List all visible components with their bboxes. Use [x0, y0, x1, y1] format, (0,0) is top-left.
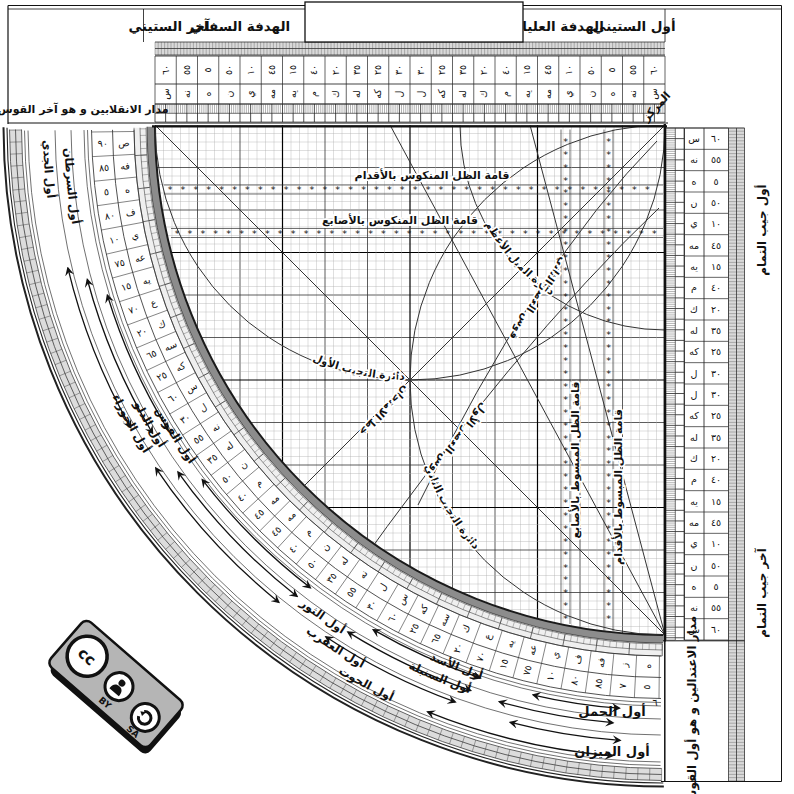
svg-text:ي: ي: [130, 229, 140, 241]
zodiac-arrow: [511, 722, 620, 740]
svg-text:*: *: [563, 291, 568, 302]
svg-text:ك: ك: [156, 318, 167, 331]
svg-text:*: *: [613, 228, 618, 239]
svg-text:ي: ي: [690, 218, 697, 229]
ruler-cell: ٤٠م: [500, 65, 511, 97]
ruler-cell: ٢٥كه: [689, 346, 721, 357]
svg-text:*: *: [606, 613, 611, 624]
ruler-cell: ٣٠ل: [691, 368, 722, 379]
ruler-cell: ٢٠ك: [690, 453, 721, 464]
svg-text:*: *: [413, 184, 418, 195]
svg-text:يه: يه: [503, 638, 516, 649]
svg-text:كه: كه: [436, 89, 447, 99]
svg-text:*: *: [258, 184, 263, 195]
cc-by-sa-badge: cc BY SA: [43, 618, 188, 756]
svg-text:كه: كه: [174, 359, 188, 373]
svg-text:نه: نه: [356, 568, 369, 581]
ruler-cell: ٥٥نه: [690, 154, 721, 165]
svg-text:٢٠: ٢٠: [478, 65, 489, 75]
svg-text:مه: مه: [542, 89, 553, 99]
svg-text:٦٠: ٦٠: [166, 390, 180, 405]
svg-text:*: *: [606, 484, 611, 495]
svg-text:*: *: [342, 228, 347, 239]
svg-text:*: *: [563, 445, 568, 456]
ruler-cell: ٥٥نه: [690, 602, 721, 613]
svg-text:ي: ي: [549, 650, 561, 660]
svg-text:*: *: [563, 226, 568, 237]
zodiac-label: أول السرطان: [61, 147, 84, 225]
svg-text:*: *: [322, 184, 327, 195]
ruler-cell: ٥٥نه: [627, 65, 638, 98]
svg-text:ن: ن: [237, 458, 249, 471]
svg-text:*: *: [355, 228, 360, 239]
svg-text:*: *: [361, 184, 366, 195]
svg-text:*: *: [523, 228, 528, 239]
ruler-cell: ٢٥كه: [372, 65, 383, 99]
svg-text:١٠: ١٠: [711, 218, 721, 229]
svg-text:*: *: [168, 184, 173, 195]
svg-text:٧٠: ٧٠: [474, 650, 488, 663]
svg-text:*: *: [563, 536, 568, 547]
svg-text:*: *: [477, 184, 482, 195]
svg-text:ز: ز: [618, 662, 629, 669]
svg-text:*: *: [563, 407, 568, 418]
svg-text:م: م: [500, 91, 511, 97]
ruler-cell: ٣٠ل: [415, 65, 426, 98]
svg-text:*: *: [563, 613, 568, 624]
svg-text:م: م: [691, 474, 697, 485]
svg-text:مه: مه: [266, 89, 277, 99]
svg-text:*: *: [600, 228, 605, 239]
svg-text:*: *: [632, 184, 637, 195]
degree-ring-cell: ٤٠م: [235, 476, 264, 504]
svg-text:*: *: [563, 355, 568, 366]
svg-text:*: *: [381, 228, 386, 239]
svg-text:نه: نه: [690, 602, 698, 613]
svg-text:*: *: [458, 228, 463, 239]
feet-row-label: قامة الظل المنكوس بالأقدام: [355, 168, 510, 182]
svg-text:١٥: ١٥: [521, 65, 532, 75]
svg-text:*: *: [368, 228, 373, 239]
svg-text:٣٠: ٣٠: [178, 411, 192, 426]
svg-text:*: *: [348, 184, 353, 195]
svg-text:*: *: [549, 228, 554, 239]
svg-text:*: *: [606, 200, 611, 211]
svg-text:*: *: [606, 368, 611, 379]
svg-text:٤٠: ٤٠: [235, 489, 250, 504]
svg-text:١٥: ١٥: [287, 65, 298, 75]
svg-text:٥٥: ٥٥: [627, 65, 638, 75]
svg-text:*: *: [606, 355, 611, 366]
svg-text:*: *: [563, 304, 568, 315]
svg-text:*: *: [542, 184, 547, 195]
ruler-cell: ٥ه: [692, 581, 719, 592]
svg-text:*: *: [490, 184, 495, 195]
svg-text:يه: يه: [521, 90, 532, 98]
sine-circle-first-label: دائرة التجيب الأول: [311, 351, 405, 382]
svg-text:*: *: [563, 420, 568, 431]
svg-text:٤٠: ٤٠: [286, 540, 301, 555]
svg-text:*: *: [575, 228, 580, 239]
svg-text:*: *: [310, 184, 315, 195]
svg-text:٨٠: ٨٠: [568, 674, 580, 686]
feet-col-label: قامة الظل المبسوط بالأقدام: [611, 409, 625, 565]
svg-text:ه: ه: [124, 183, 130, 195]
svg-text:٣٠: ٣٠: [393, 65, 404, 75]
svg-text:*: *: [426, 184, 431, 195]
svg-text:*: *: [563, 200, 568, 211]
degree-ring-cell: ٩٠ص: [98, 137, 130, 149]
first-sixty-label: أول الستيني: [592, 18, 675, 34]
sine-circle-first-text: دائرة التجيب الأول: [311, 351, 405, 382]
svg-text:كه: كه: [416, 602, 430, 616]
svg-text:٥٠: ٥٠: [585, 65, 596, 75]
svg-text:*: *: [291, 228, 296, 239]
svg-text:٧٥: ٧٥: [520, 664, 533, 677]
svg-text:١٥: ١٥: [711, 261, 721, 272]
svg-text:٣٥: ٣٥: [351, 65, 362, 75]
svg-text:*: *: [563, 136, 568, 147]
svg-text:٢٠: ٢٠: [135, 325, 149, 339]
ruler-cell: ٦٠س: [160, 65, 171, 100]
svg-text:*: *: [563, 239, 568, 250]
svg-text:*: *: [464, 184, 469, 195]
svg-text:*: *: [606, 239, 611, 250]
ruler-cell: ٣٠ل: [691, 389, 722, 400]
svg-text:*: *: [200, 228, 205, 239]
svg-text:*: *: [563, 587, 568, 598]
svg-text:*: *: [510, 228, 515, 239]
svg-text:*: *: [606, 523, 611, 534]
svg-text:مه: مه: [266, 492, 281, 507]
svg-text:*: *: [563, 278, 568, 289]
svg-text:٦٥: ٦٥: [429, 632, 443, 646]
svg-text:٤٠: ٤٠: [711, 474, 721, 485]
ruler-cell: ٢٥كه: [436, 65, 447, 99]
svg-text:٥: ٥: [713, 176, 718, 187]
svg-text:*: *: [606, 381, 611, 392]
svg-text:٥٥: ٥٥: [344, 585, 359, 600]
svg-text:٢٥: ٢٥: [436, 65, 447, 75]
svg-text:*: *: [606, 265, 611, 276]
svg-text:*: *: [439, 184, 444, 195]
svg-text:له: له: [337, 554, 351, 567]
svg-text:ل: ل: [691, 389, 698, 400]
svg-text:*: *: [606, 562, 611, 573]
svg-text:ن: ن: [585, 90, 596, 97]
svg-text:٢٥: ٢٥: [372, 65, 383, 75]
svg-text:*: *: [407, 228, 412, 239]
svg-text:ع: ع: [149, 296, 158, 308]
svg-text:*: *: [563, 329, 568, 340]
ruler-cell: ١٥يه: [690, 496, 721, 507]
svg-text:١٥: ١٥: [120, 280, 133, 293]
ruler-cell: ٦٠س: [688, 133, 721, 144]
svg-text:*: *: [563, 497, 568, 508]
svg-text:*: *: [335, 184, 340, 195]
svg-text:*: *: [317, 228, 322, 239]
ruler-cell: ٢٠ك: [478, 65, 489, 98]
svg-text:٣٠: ٣٠: [364, 598, 379, 612]
svg-text:*: *: [193, 184, 198, 195]
svg-text:*: *: [606, 574, 611, 585]
svg-text:٢٥: ٢٥: [155, 369, 169, 383]
svg-text:٣٥: ٣٥: [324, 571, 339, 586]
svg-text:مه: مه: [283, 509, 298, 524]
svg-text:*: *: [206, 184, 211, 195]
svg-text:*: *: [606, 252, 611, 263]
svg-text:ك: ك: [690, 304, 698, 315]
svg-text:٧٥: ٧٥: [113, 256, 126, 269]
svg-text:٢٠: ٢٠: [711, 304, 721, 315]
ruler-cell: ٥٠ن: [223, 65, 234, 98]
ruler-cell: ٣٥له: [351, 65, 362, 98]
svg-text:*: *: [639, 228, 644, 239]
svg-text:*: *: [563, 149, 568, 160]
svg-text:*: *: [563, 187, 568, 198]
svg-text:عه: عه: [133, 251, 146, 264]
svg-text:٦٠: ٦٠: [711, 133, 721, 144]
svg-text:*: *: [563, 162, 568, 173]
degree-ring-cell: ٧٥عه: [520, 643, 538, 676]
svg-text:ه: ه: [642, 664, 653, 669]
svg-text:نه: نه: [209, 420, 222, 433]
fingers-row-label: قامة الظل المنكوس بالأصابع: [322, 213, 478, 227]
svg-text:له: له: [457, 90, 468, 98]
svg-text:*: *: [606, 162, 611, 173]
svg-text:ل: ل: [376, 581, 389, 593]
svg-text:٢٥: ٢٥: [407, 621, 421, 635]
svg-text:*: *: [181, 184, 186, 195]
svg-text:٤٠: ٤٠: [711, 282, 721, 293]
svg-text:يه: يه: [690, 496, 698, 507]
svg-text:١٥: ١٥: [711, 496, 721, 507]
svg-text:*: *: [606, 407, 611, 418]
svg-text:٥: ٥: [103, 186, 109, 198]
svg-text:*: *: [606, 175, 611, 186]
svg-text:٣٥: ٣٥: [457, 65, 468, 75]
svg-text:٥: ٥: [713, 581, 718, 592]
svg-text:نه: نه: [690, 154, 698, 165]
svg-text:*: *: [563, 574, 568, 585]
svg-text:*: *: [619, 184, 624, 195]
svg-text:م: م: [691, 282, 697, 293]
svg-text:*: *: [516, 184, 521, 195]
svg-text:ل: ل: [393, 90, 404, 97]
svg-text:*: *: [175, 228, 180, 239]
svg-text:نه: نه: [181, 90, 192, 98]
svg-text:*: *: [606, 433, 611, 444]
svg-text:*: *: [555, 184, 560, 195]
ruler-cell: ١٠ي: [690, 218, 721, 229]
svg-text:ف: ف: [125, 206, 137, 218]
svg-text:*: *: [284, 184, 289, 195]
svg-text:ل: ل: [415, 90, 426, 97]
svg-text:*: *: [606, 394, 611, 405]
ruler-cell: ١٥يه: [287, 65, 298, 98]
ruler-cell: ٢٠ك: [690, 304, 721, 315]
top-sexagesimal-ruler: ٦٠س٥٥نه٥ه٥٠ن١٠ي٤٥مه١٥يه٤٠م٢٠ك٣٥له٢٥كه٣٠ل…: [155, 42, 665, 122]
svg-text:سه: سه: [162, 338, 178, 353]
ruler-cell: ٥٠ن: [691, 560, 722, 571]
ruler-cell: ١٠ي: [690, 538, 721, 549]
svg-text:ص: ص: [118, 137, 130, 148]
svg-text:٩٠: ٩٠: [98, 138, 109, 149]
svg-text:س: س: [688, 133, 700, 144]
svg-text:يه: يه: [141, 274, 152, 287]
svg-text:يه: يه: [287, 90, 298, 98]
svg-text:*: *: [420, 228, 425, 239]
svg-text:*: *: [606, 187, 611, 198]
svg-text:*: *: [563, 471, 568, 482]
svg-text:*: *: [252, 228, 257, 239]
svg-text:٤٥: ٤٥: [711, 240, 721, 251]
svg-text:*: *: [563, 484, 568, 495]
ruler-cell: ١٠ي: [563, 65, 574, 98]
svg-text:*: *: [563, 549, 568, 560]
svg-text:يه: يه: [690, 261, 698, 272]
equinox-note: مدار الاعتدالين و هو أول القوس: [684, 616, 700, 794]
svg-text:*: *: [606, 536, 611, 547]
svg-text:٤٥: ٤٥: [542, 65, 553, 75]
svg-text:م: م: [252, 476, 264, 488]
svg-text:*: *: [626, 228, 631, 239]
svg-text:كه: كه: [372, 89, 383, 99]
svg-text:*: *: [563, 175, 568, 186]
ruler-cell: ٢٠ك: [330, 65, 341, 98]
ruler-cell: ٥٠ن: [691, 197, 722, 208]
svg-text:*: *: [606, 278, 611, 289]
svg-text:س: س: [395, 591, 410, 606]
svg-text:*: *: [265, 228, 270, 239]
svg-text:١٠: ١٠: [108, 233, 120, 246]
svg-text:٦٥: ٦٥: [144, 347, 158, 361]
cosine-end-label: آخر جيب التمام: [754, 547, 770, 638]
ruler-cell: ٤٥مه: [689, 240, 721, 251]
ruler-cell: ٤٠م: [308, 65, 319, 97]
ruler-cell: ١٥يه: [690, 261, 721, 272]
svg-text:٢٠: ٢٠: [330, 65, 341, 75]
svg-text:*: *: [606, 497, 611, 508]
svg-text:٣٥: ٣٥: [711, 432, 721, 443]
svg-text:*: *: [451, 184, 456, 195]
svg-text:٤٥: ٤٥: [711, 517, 721, 528]
svg-text:٣٥: ٣٥: [205, 451, 220, 466]
svg-text:مه: مه: [689, 240, 699, 251]
svg-text:٥: ٥: [641, 684, 652, 689]
svg-text:٤٥: ٤٥: [266, 65, 277, 75]
svg-text:١٠: ١٠: [563, 65, 574, 75]
degree-ring-cell: ٧٠ع: [127, 296, 158, 316]
svg-text:ف: ف: [571, 654, 583, 666]
svg-text:٣٠: ٣٠: [711, 389, 721, 400]
svg-text:*: *: [563, 562, 568, 573]
svg-text:ي: ي: [563, 90, 574, 97]
svg-text:*: *: [563, 523, 568, 534]
svg-text:٣٠: ٣٠: [415, 65, 426, 75]
svg-text:٥٥: ٥٥: [181, 65, 192, 75]
svg-text:س: س: [184, 380, 199, 395]
svg-text:١٥: ١٥: [497, 657, 510, 670]
svg-text:ن: ن: [223, 90, 234, 97]
svg-text:*: *: [606, 549, 611, 560]
svg-text:*: *: [606, 458, 611, 469]
degree-ring-cell: ٧٠ع: [474, 632, 494, 663]
svg-text:ك: ك: [690, 453, 698, 464]
svg-text:*: *: [563, 600, 568, 611]
svg-text:مه: مه: [689, 517, 699, 528]
svg-text:ي: ي: [690, 538, 697, 549]
zodiac-arrow: [156, 468, 279, 602]
svg-text:*: *: [188, 228, 193, 239]
svg-text:١٠: ١٠: [711, 538, 721, 549]
svg-text:*: *: [606, 213, 611, 224]
ruler-cell: ٥ه: [606, 67, 617, 96]
ruler-cell: ٤٠م: [691, 474, 721, 485]
svg-text:*: *: [606, 226, 611, 237]
svg-text:*: *: [394, 228, 399, 239]
svg-text:ي: ي: [245, 90, 256, 97]
solstice-note: مدار الانقلابين و هو آخر القوس: [0, 102, 169, 116]
ruler-cell: ٤٥مه: [689, 517, 721, 528]
svg-text:٥: ٥: [606, 67, 617, 72]
svg-text:*: *: [606, 304, 611, 315]
sine-quadrant-diagram: ٩٠ص٨٥فه٥ه٨٠ف١٠ي٧٥عه١٥يه٧٠ع٢٠ك٦٥سه٢٥كه٦٠س…: [0, 0, 794, 794]
zodiac-label: أول الثور: [297, 595, 349, 637]
ruler-cell: ٣٠ل: [393, 65, 404, 98]
svg-text:*: *: [471, 228, 476, 239]
svg-text:*: *: [446, 228, 451, 239]
svg-text:٥٠: ٥٠: [223, 65, 234, 75]
svg-text:*: *: [226, 228, 231, 239]
degree-ring-cell: ٧٥عه: [113, 251, 146, 269]
lower-vane-label: الهدفة السفلي: [190, 18, 290, 34]
svg-text:٢٥: ٢٥: [711, 410, 721, 421]
svg-text:*: *: [563, 510, 568, 521]
svg-text:*: *: [400, 184, 405, 195]
svg-text:*: *: [645, 184, 650, 195]
right-cosine-ruler: ٦٠س٥٥نه٥ه٥٠ن١٠ي٤٥مه١٥يه٤٠م٢٠ك٣٥له٢٥كه٣٠ل…: [666, 128, 745, 781]
ruler-cell: ٣٥له: [457, 65, 468, 98]
ruler-cell: ٤٥مه: [542, 65, 553, 99]
svg-text:م: م: [308, 91, 319, 97]
svg-text:٥٥: ٥٥: [711, 602, 721, 613]
svg-text:٣٠: ٣٠: [711, 368, 721, 379]
svg-text:*: *: [606, 149, 611, 160]
svg-text:سه: سه: [437, 611, 452, 627]
degree-ring-cell: ٦٠س: [385, 591, 410, 624]
alidade-tab: [305, 2, 523, 42]
svg-text:*: *: [606, 136, 611, 147]
svg-text:٥٠: ٥٠: [219, 470, 234, 485]
svg-text:*: *: [587, 228, 592, 239]
ruler-cell: ٥٥نه: [181, 65, 192, 98]
svg-text:*: *: [374, 184, 379, 195]
svg-text:*: *: [563, 433, 568, 444]
svg-text:*: *: [563, 342, 568, 353]
svg-text:*: *: [606, 471, 611, 482]
svg-text:*: *: [606, 600, 611, 611]
svg-text:*: *: [232, 184, 237, 195]
svg-text:٥٠: ٥٠: [305, 556, 320, 571]
svg-text:*: *: [213, 228, 218, 239]
svg-text:كه: كه: [689, 410, 699, 421]
svg-text:ه: ه: [606, 91, 617, 96]
svg-text:*: *: [606, 445, 611, 456]
svg-text:٤٥: ٤٥: [268, 524, 283, 539]
svg-text:*: *: [219, 184, 224, 195]
svg-text:*: *: [606, 510, 611, 521]
